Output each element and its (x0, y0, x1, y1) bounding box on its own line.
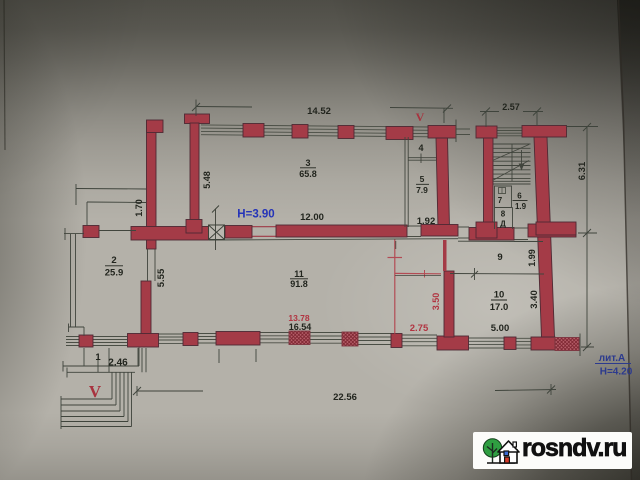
svg-text:2.57: 2.57 (502, 102, 520, 112)
svg-text:91.8: 91.8 (290, 279, 308, 289)
svg-text:65.8: 65.8 (299, 169, 317, 179)
svg-text:12.00: 12.00 (300, 212, 324, 223)
svg-text:6: 6 (517, 192, 522, 201)
svg-text:14.52: 14.52 (307, 106, 331, 117)
svg-text:2.46: 2.46 (108, 358, 128, 369)
svg-text:16.54: 16.54 (289, 322, 312, 332)
svg-text:H=3.90: H=3.90 (237, 209, 274, 221)
svg-text:V: V (416, 110, 425, 124)
svg-text:4: 4 (418, 143, 423, 153)
svg-text:6.31: 6.31 (577, 161, 588, 180)
svg-text:2.75: 2.75 (410, 323, 429, 334)
svg-text:V: V (89, 382, 102, 401)
svg-text:1.92: 1.92 (417, 216, 436, 227)
svg-text:3: 3 (305, 158, 310, 168)
svg-text:1.70: 1.70 (134, 199, 144, 217)
svg-text:1.99: 1.99 (527, 249, 537, 267)
svg-text:17.0: 17.0 (490, 302, 509, 313)
svg-text:22.56: 22.56 (333, 392, 357, 403)
svg-text:Н=4.20: Н=4.20 (600, 367, 633, 378)
svg-text:1: 1 (95, 352, 101, 363)
svg-text:2: 2 (111, 255, 116, 266)
svg-text:7: 7 (498, 196, 503, 205)
svg-text:Д: Д (500, 220, 506, 229)
svg-text:5.48: 5.48 (202, 171, 212, 189)
svg-text:7.9: 7.9 (416, 185, 428, 195)
svg-text:5.55: 5.55 (156, 268, 167, 287)
svg-text:25.9: 25.9 (105, 268, 124, 279)
svg-text:1.9: 1.9 (515, 202, 527, 211)
svg-text:10: 10 (494, 290, 505, 301)
svg-text:8: 8 (501, 210, 506, 219)
svg-text:3.40: 3.40 (529, 290, 540, 309)
svg-text:лит.А: лит.А (599, 353, 626, 364)
svg-text:3.50: 3.50 (431, 293, 441, 311)
svg-text:9: 9 (497, 252, 502, 263)
svg-text:11: 11 (294, 269, 304, 279)
svg-text:5: 5 (420, 174, 425, 184)
svg-text:13.78: 13.78 (288, 313, 310, 323)
svg-text:5.00: 5.00 (491, 323, 510, 334)
